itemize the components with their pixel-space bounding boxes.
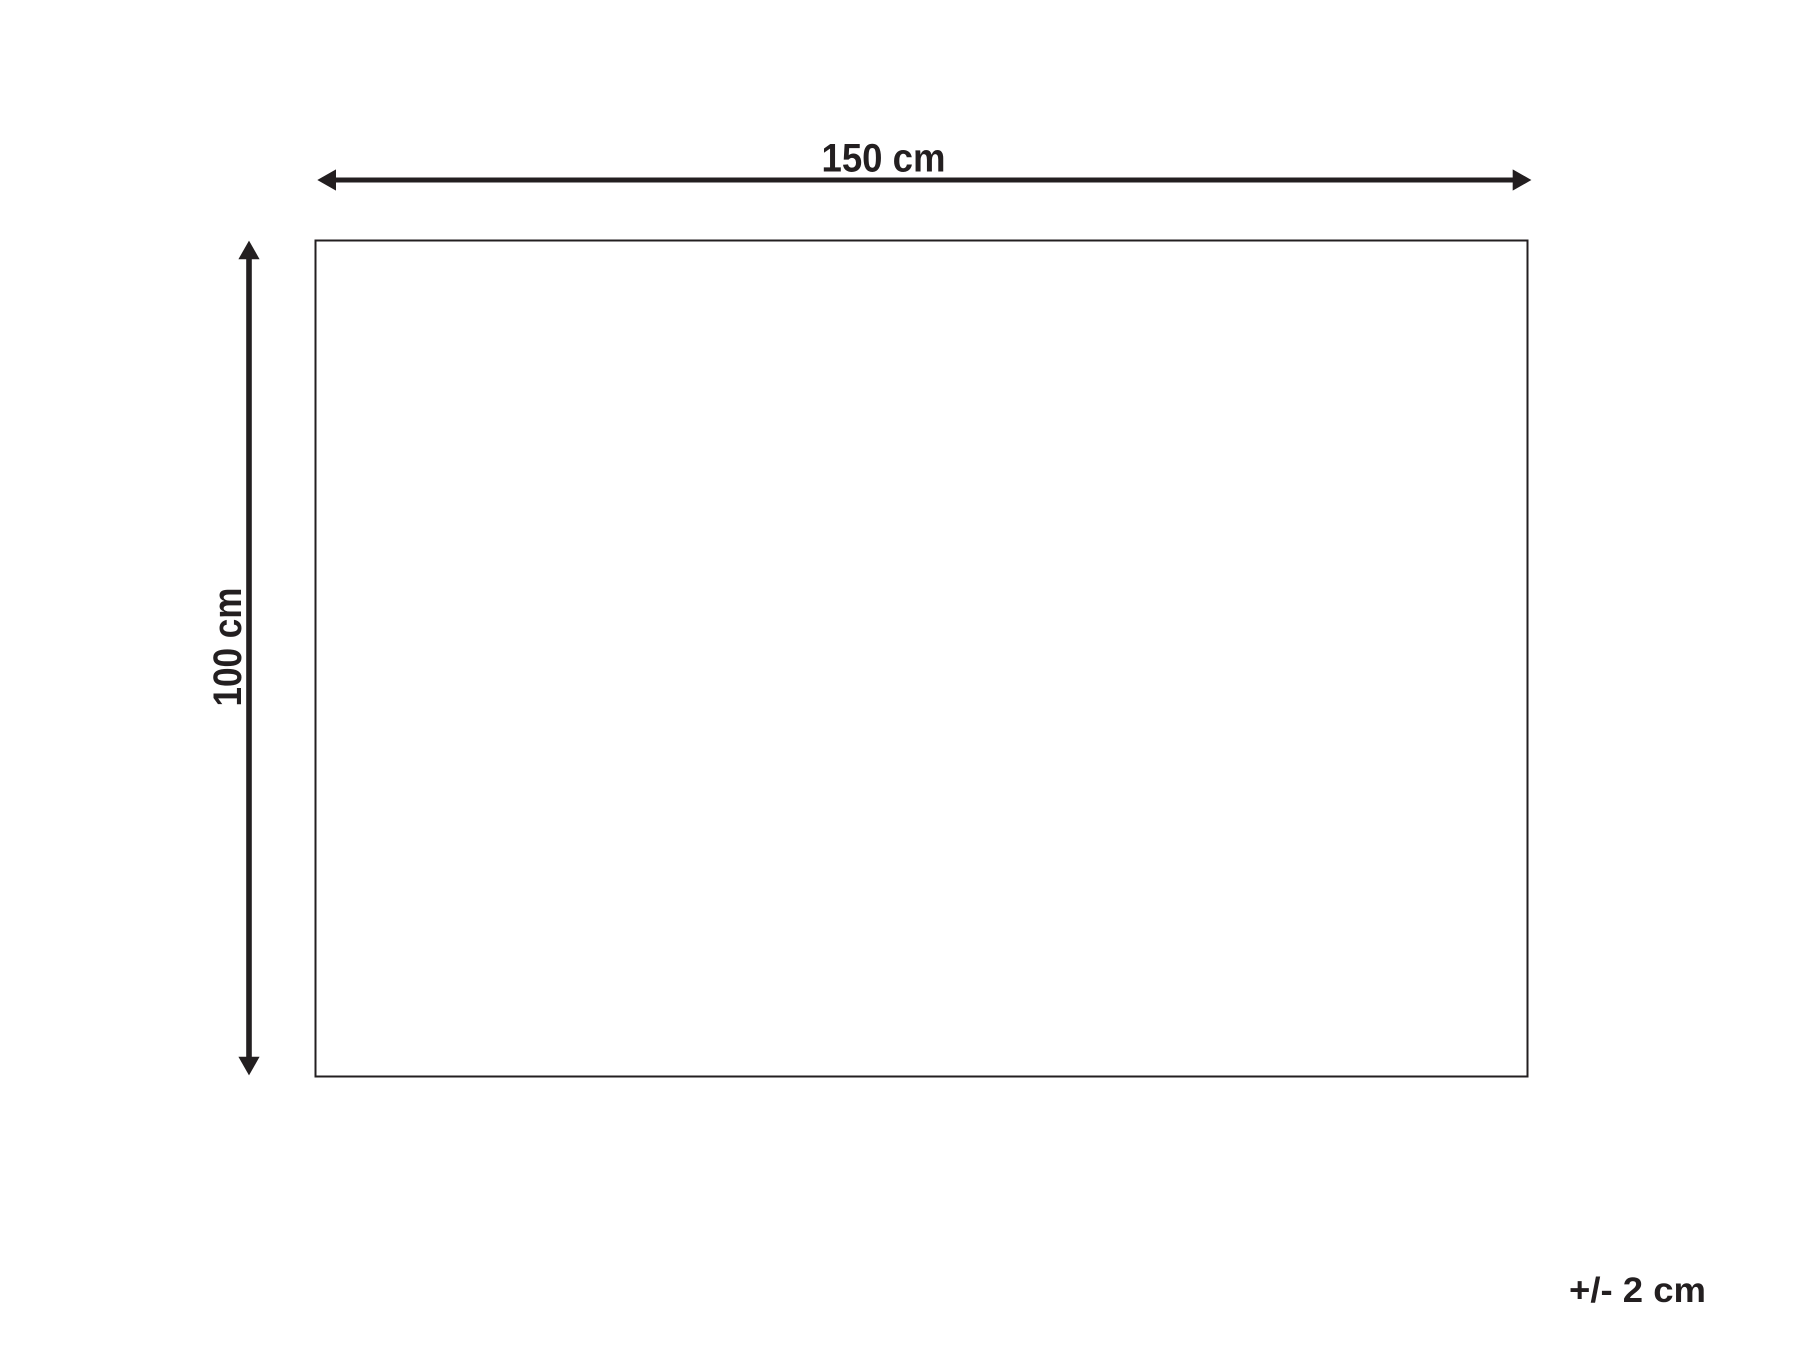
- svg-text:150 cm: 150 cm: [822, 137, 946, 181]
- svg-text:100 cm: 100 cm: [206, 588, 250, 707]
- svg-text:+/- 2 cm: +/- 2 cm: [1569, 1271, 1706, 1310]
